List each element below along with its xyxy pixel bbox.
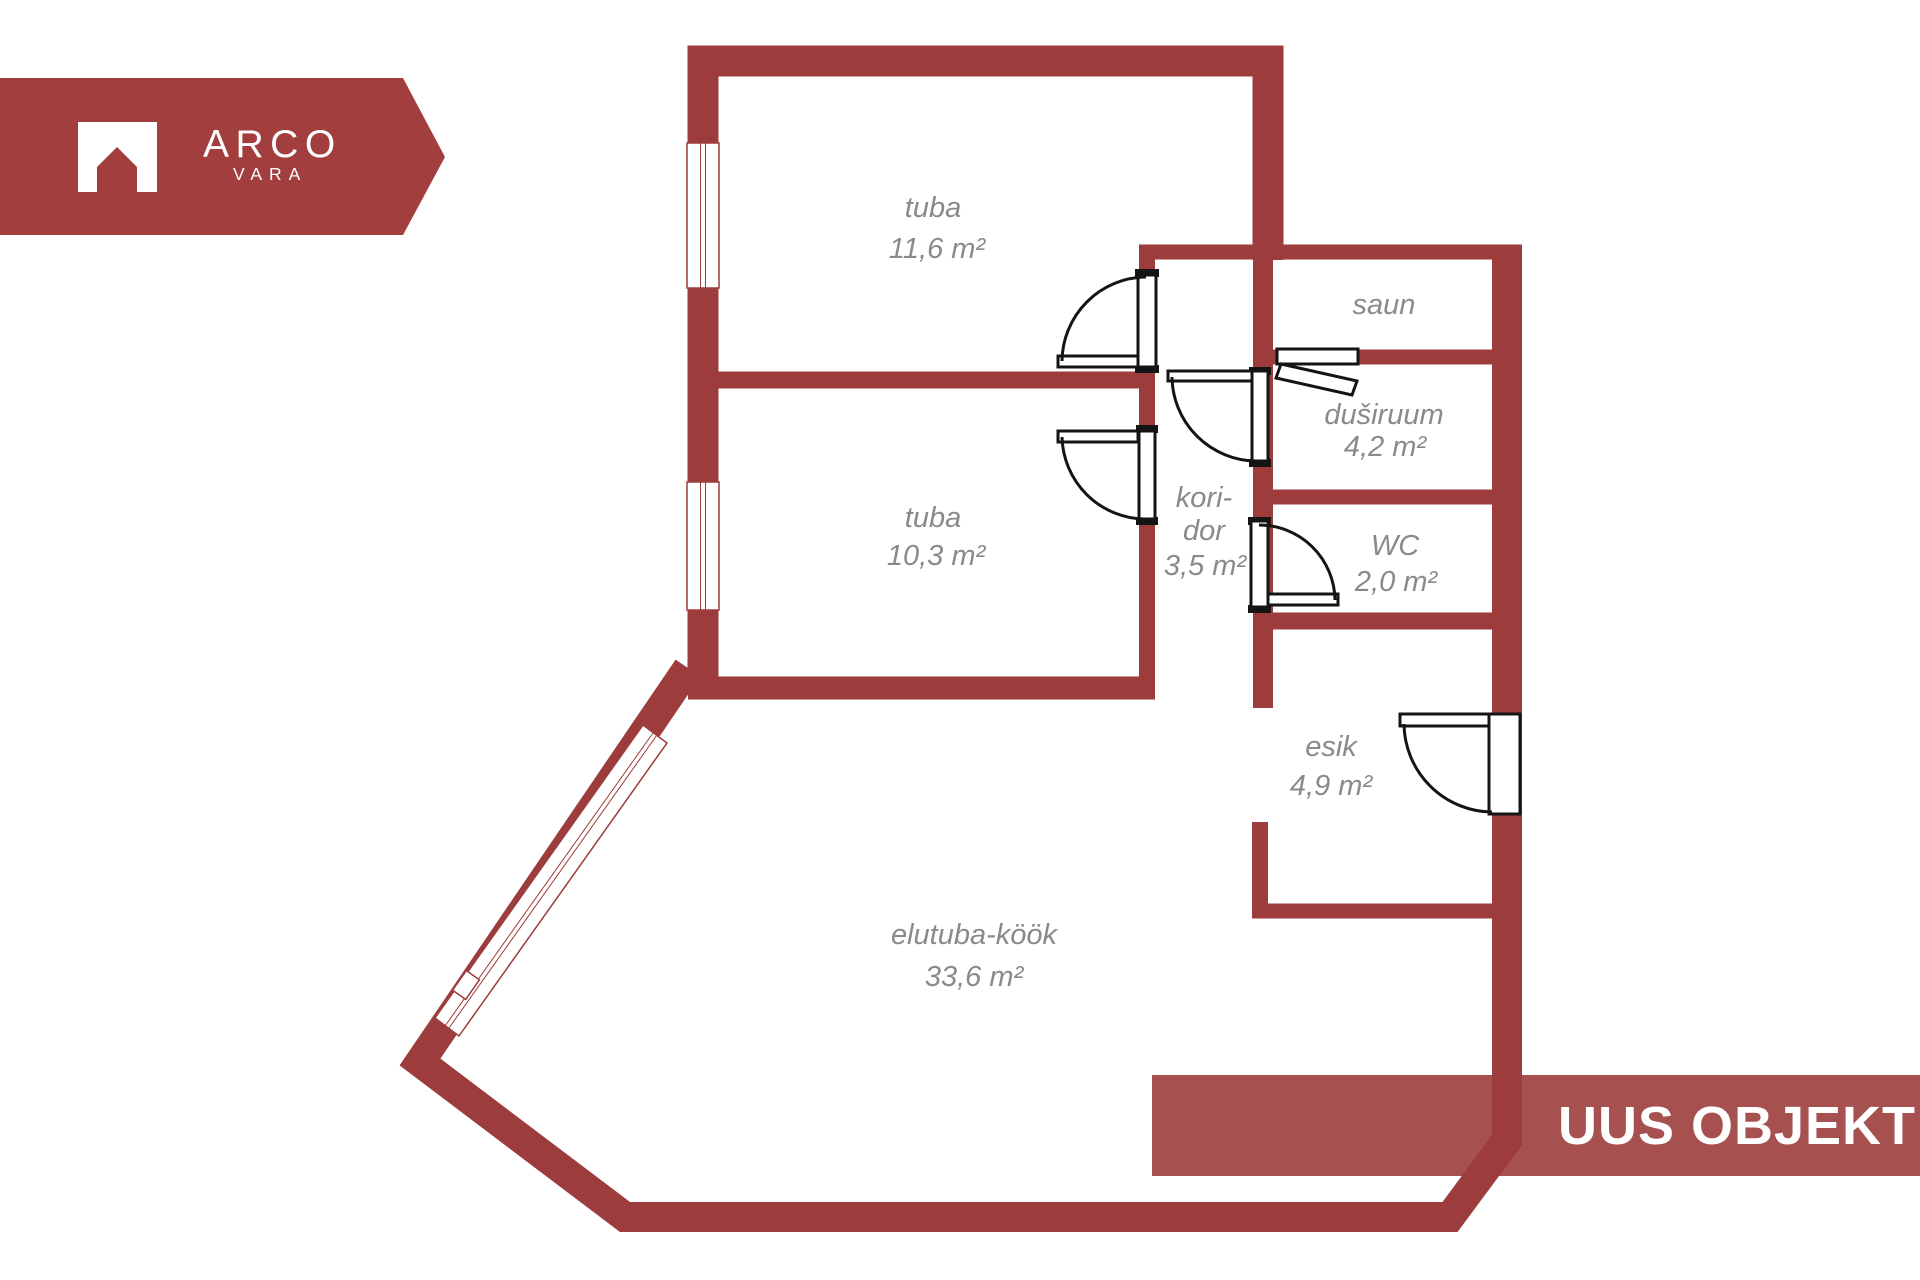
logo-brand-text: ARCO xyxy=(203,123,342,166)
logo-sub-text: VARA xyxy=(233,164,307,184)
room-area-elutuba: 33,6 m² xyxy=(925,961,1025,993)
window-tuba2 xyxy=(687,482,719,610)
room-area-tuba1: 11,6 m² xyxy=(889,233,987,265)
logo-banner: ARCO VARA xyxy=(0,78,445,235)
room-area-esik: 4,9 m² xyxy=(1290,770,1374,802)
room-name-elutuba: elutuba-köök xyxy=(891,919,1059,951)
room-name-esik: esik xyxy=(1305,731,1358,763)
window-tuba1 xyxy=(687,143,719,288)
object-banner-text: UUS OBJEKT xyxy=(1558,1096,1916,1156)
door-wc xyxy=(1248,517,1338,613)
room-name-tuba2: tuba xyxy=(905,502,961,534)
room-area-dusiruum: 4,2 m² xyxy=(1344,431,1428,463)
room-area-wc: 2,0 m² xyxy=(1354,566,1439,598)
door-entry xyxy=(1400,714,1520,814)
floorplan-canvas: tuba 11,6 m² tuba 10,3 m² saun duširuum … xyxy=(0,0,1920,1280)
room-name-wc: WC xyxy=(1371,530,1420,562)
room-name-koridor-line2: dor xyxy=(1183,515,1226,547)
door-dusiruum xyxy=(1168,367,1271,467)
window-diagonal xyxy=(435,725,667,1036)
room-labels: tuba 11,6 m² tuba 10,3 m² saun duširuum … xyxy=(887,192,1444,993)
door-tuba2 xyxy=(1058,425,1158,525)
room-name-dusiruum: duširuum xyxy=(1324,399,1443,431)
room-name-tuba1: tuba xyxy=(905,192,961,224)
door-tuba1 xyxy=(1058,269,1159,373)
room-area-tuba2: 10,3 m² xyxy=(887,540,987,572)
room-name-koridor-line1: kori- xyxy=(1176,482,1232,514)
room-name-saun: saun xyxy=(1353,289,1416,321)
room-area-koridor: 3,5 m² xyxy=(1164,550,1248,582)
windows xyxy=(435,143,719,1036)
door-sauna-folding xyxy=(1276,349,1358,395)
